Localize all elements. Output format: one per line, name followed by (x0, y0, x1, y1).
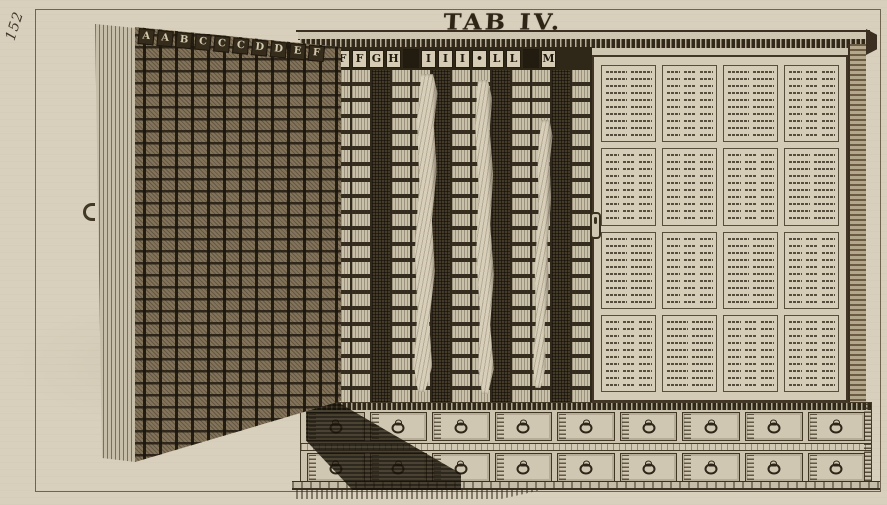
door-letter-tile: A (156, 30, 173, 47)
column-letter-tile: L (506, 50, 521, 68)
specimen-group (601, 148, 656, 225)
door-edge (95, 22, 135, 464)
specimen-group (662, 65, 717, 142)
specimen-text-block (788, 319, 802, 388)
column-letter-tile: H (386, 50, 401, 68)
drawer (495, 453, 553, 482)
pigeonhole-column (572, 70, 592, 402)
column-gap (403, 49, 419, 68)
drawer (682, 453, 740, 482)
plate-title: TAB IV. (407, 8, 598, 35)
ring-pull-icon (830, 463, 843, 474)
drawer (432, 412, 490, 441)
specimen-text-block (622, 319, 636, 388)
door-letter-tile: A (137, 28, 154, 45)
column-letter-tile: I (438, 50, 453, 68)
specimen-text-block (760, 152, 774, 221)
column-letter-tile: F (352, 50, 367, 68)
open-door: AABCCCDDEF (95, 22, 341, 464)
specimen-group (601, 315, 656, 392)
specimen-text-block (727, 236, 749, 305)
specimen-text-block (666, 319, 688, 388)
column-letter-tile: G (369, 50, 384, 68)
engraved-plate: 152 TAB IV. FFGHIII•LLM AABCCCDDEF (0, 0, 887, 505)
specimen-text-block (727, 69, 749, 138)
specimen-text-block (760, 319, 774, 388)
specimen-text-block (788, 152, 810, 221)
handwritten-page-number: 152 (3, 9, 27, 42)
specimen-text-block (605, 236, 627, 305)
door-letter-tile: C (232, 37, 249, 54)
cornice-right-return (866, 29, 877, 55)
drawer (745, 453, 803, 482)
specimen-group (784, 65, 839, 142)
specimen-text-block (638, 152, 652, 221)
column-letter-row: FFGHIII•LLM (332, 47, 592, 70)
specimen-text-block (805, 69, 819, 138)
door-letter-tile: F (308, 45, 325, 62)
chest-tick-rail (301, 403, 871, 410)
column-letter-tile: I (421, 50, 436, 68)
drawer (557, 412, 615, 441)
specimen-group (662, 315, 717, 392)
specimen-text-block (752, 236, 774, 305)
column-letter-tile: I (455, 50, 470, 68)
specimen-group (601, 65, 656, 142)
ring-pull-icon (580, 422, 593, 433)
specimen-text-block (752, 69, 774, 138)
ring-pull-icon (705, 463, 718, 474)
specimen-text-block (821, 69, 835, 138)
specimen-text-block (638, 319, 652, 388)
specimen-text-block (727, 319, 741, 388)
specimen-text-block (788, 69, 802, 138)
ring-pull-icon (767, 463, 780, 474)
pigeonhole-column (352, 70, 372, 402)
specimen-group (784, 315, 839, 392)
drawer (495, 412, 553, 441)
specimen-text-block (788, 236, 802, 305)
specimen-group (723, 148, 778, 225)
drawer (682, 412, 740, 441)
specimen-text-block (605, 152, 619, 221)
plate-border-right (880, 9, 881, 492)
door-letter-tile: C (213, 35, 230, 52)
specimen-group (662, 148, 717, 225)
drawer (808, 453, 866, 482)
ring-pull-icon (705, 422, 718, 433)
specimen-group (784, 148, 839, 225)
specimen-text-block (805, 236, 819, 305)
specimen-text-block (683, 152, 697, 221)
ring-pull-icon (517, 463, 530, 474)
specimen-text-block (699, 236, 713, 305)
column-letter-tile: L (489, 50, 504, 68)
drawer (557, 453, 615, 482)
specimen-group (662, 232, 717, 309)
ring-pull-icon (830, 422, 843, 433)
column-letter-tile: • (472, 50, 487, 68)
pigeonhole-column (512, 70, 532, 402)
door-letter-tile: E (289, 43, 306, 60)
door-letter-tile: D (251, 39, 268, 56)
pigeonhole-column (552, 70, 572, 402)
specimen-text-block (805, 319, 819, 388)
specimen-text-block (821, 236, 835, 305)
specimen-text-block (605, 69, 627, 138)
specimen-text-block (605, 319, 619, 388)
drawer (620, 412, 678, 441)
pigeonhole-columns (332, 70, 592, 402)
specimen-text-block (699, 152, 713, 221)
specimen-panel (592, 55, 848, 402)
specimen-text-block (699, 69, 713, 138)
specimen-text-block (666, 152, 680, 221)
column-gap (523, 49, 539, 68)
specimen-text-block (683, 236, 697, 305)
specimen-text-block (821, 319, 835, 388)
ring-pull-icon (454, 422, 467, 433)
specimen-text-block (744, 152, 758, 221)
hinge-icon (83, 203, 95, 221)
ring-pull-icon (517, 422, 530, 433)
door-letter-tile: D (270, 41, 287, 58)
specimen-text-block (691, 319, 713, 388)
specimen-text-block (744, 319, 758, 388)
specimen-text-block (630, 69, 652, 138)
ring-pull-icon (642, 422, 655, 433)
drawer (808, 412, 866, 441)
specimen-group (601, 232, 656, 309)
specimen-text-block (630, 236, 652, 305)
column-letter-tile: M (541, 50, 556, 68)
ring-pull-icon (580, 463, 593, 474)
specimen-text-block (683, 69, 697, 138)
specimen-text-block (666, 69, 680, 138)
latch-pull-icon (590, 212, 601, 239)
ring-pull-icon (392, 422, 405, 433)
plate-border-left (35, 9, 36, 492)
cabinet-right-edge (848, 44, 866, 402)
pigeonhole-column (372, 70, 392, 402)
ground-shadow (296, 489, 546, 499)
ring-pull-icon (642, 463, 655, 474)
specimen-group (723, 65, 778, 142)
specimen-text-block (622, 152, 636, 221)
door-letter-tile: C (194, 34, 211, 51)
specimen-group (784, 232, 839, 309)
drawer (620, 453, 678, 482)
specimen-text-block (813, 152, 835, 221)
ring-pull-icon (767, 422, 780, 433)
pigeonhole-column (452, 70, 472, 402)
specimen-text-block (727, 152, 741, 221)
specimen-group (723, 232, 778, 309)
pigeonhole-column (392, 70, 412, 402)
door-letter-tile: B (175, 32, 192, 49)
drawer (745, 412, 803, 441)
pigeonhole-column (432, 70, 452, 402)
specimen-group (723, 315, 778, 392)
pigeonhole-column (492, 70, 512, 402)
specimen-text-block (666, 236, 680, 305)
